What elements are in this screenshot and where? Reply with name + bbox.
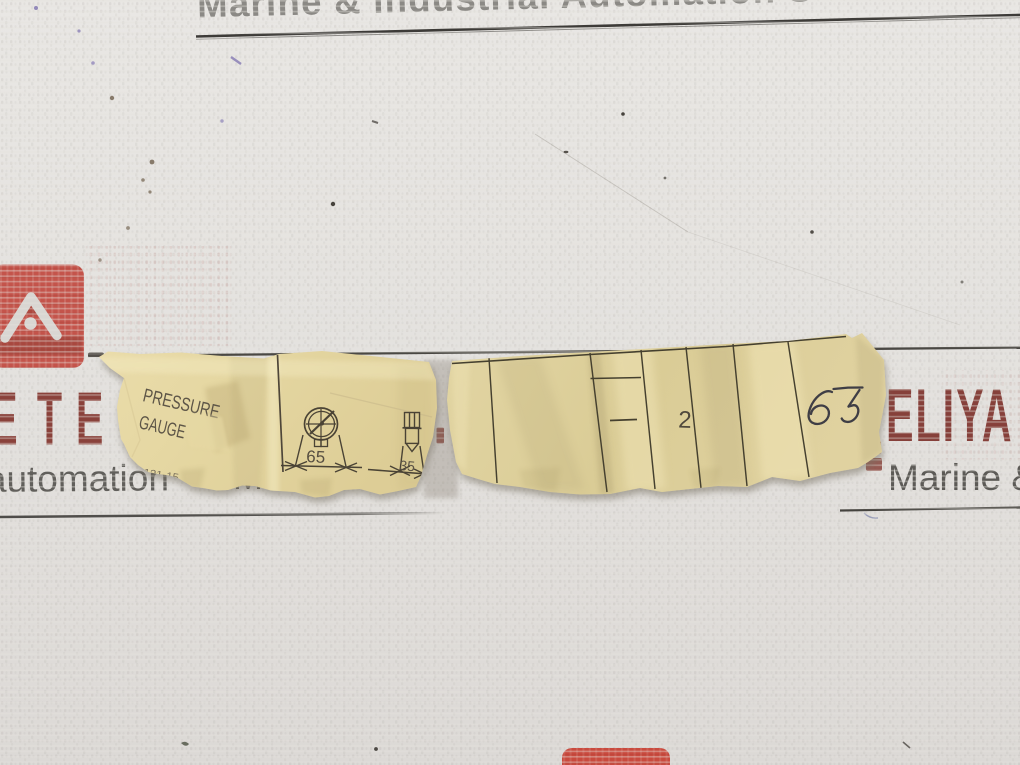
svg-text:35: 35 (399, 457, 416, 474)
svg-text:2: 2 (678, 407, 692, 434)
svg-text:65: 65 (306, 447, 326, 467)
